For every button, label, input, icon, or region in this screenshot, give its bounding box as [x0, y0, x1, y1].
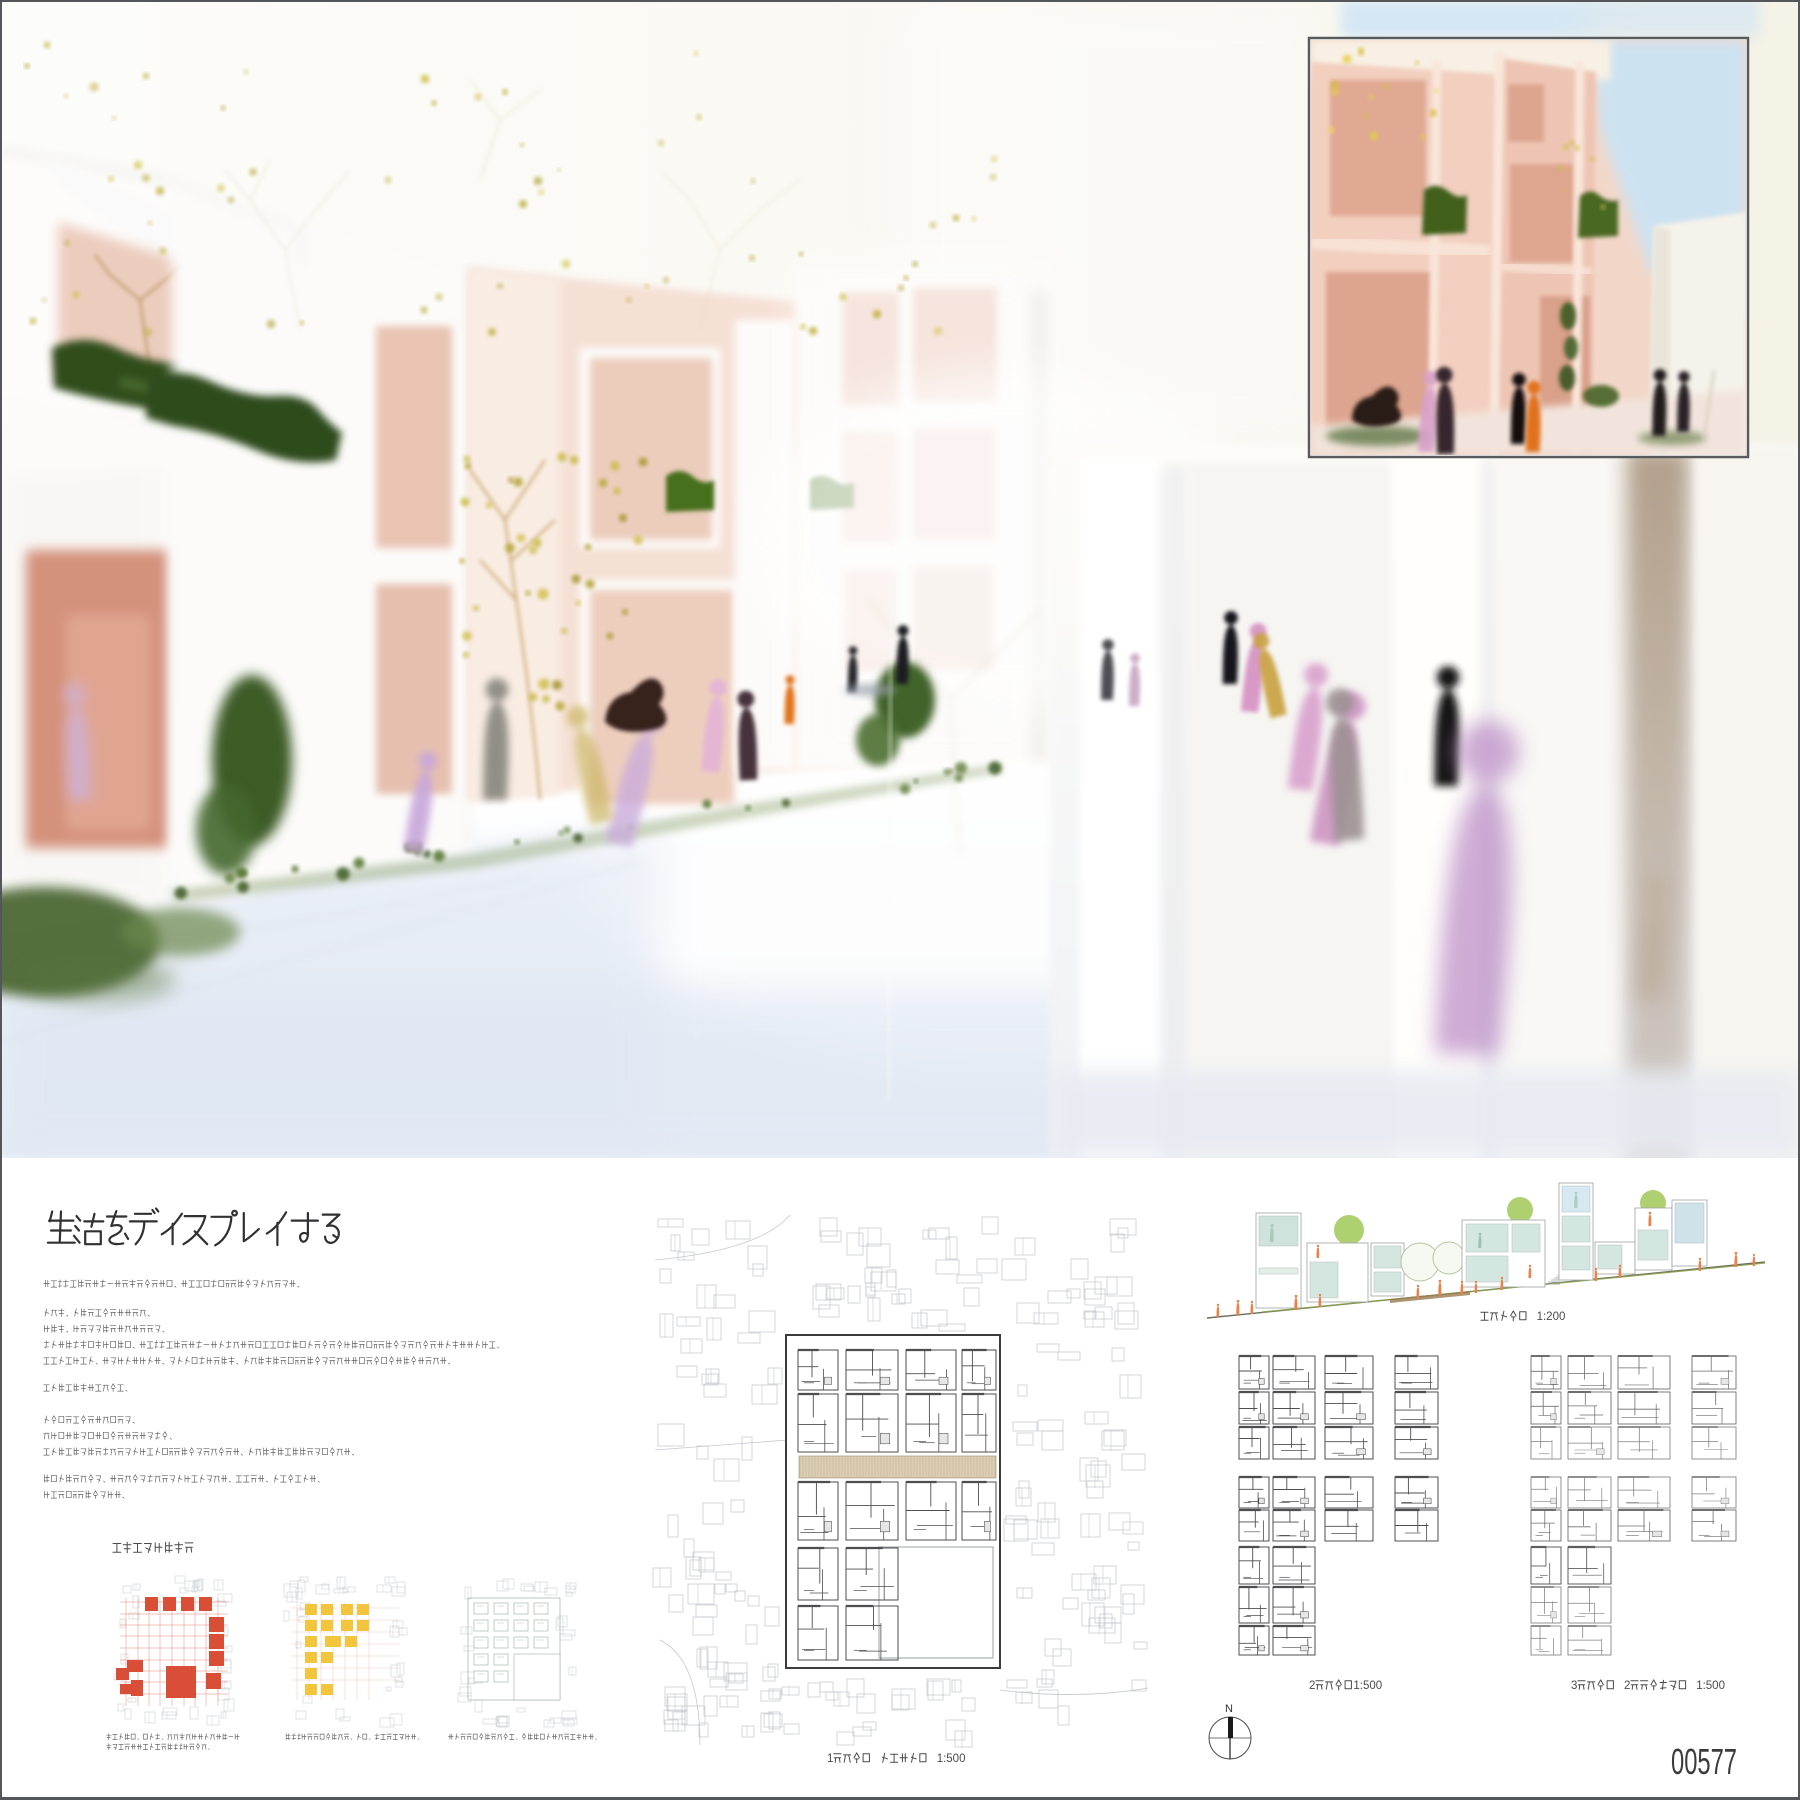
svg-text:2: 2	[1624, 1680, 1630, 1692]
svg-text:N: N	[1225, 1703, 1233, 1715]
svg-text:1:200: 1:200	[1537, 1311, 1566, 1323]
svg-text:1:500: 1:500	[937, 1753, 966, 1765]
svg-text:2: 2	[1309, 1680, 1315, 1692]
svg-text:00577: 00577	[1671, 1741, 1737, 1782]
svg-text:1: 1	[827, 1753, 833, 1765]
svg-text:1:500: 1:500	[1353, 1680, 1382, 1692]
svg-text:1:500: 1:500	[1696, 1680, 1725, 1692]
svg-text:3: 3	[1571, 1680, 1577, 1692]
